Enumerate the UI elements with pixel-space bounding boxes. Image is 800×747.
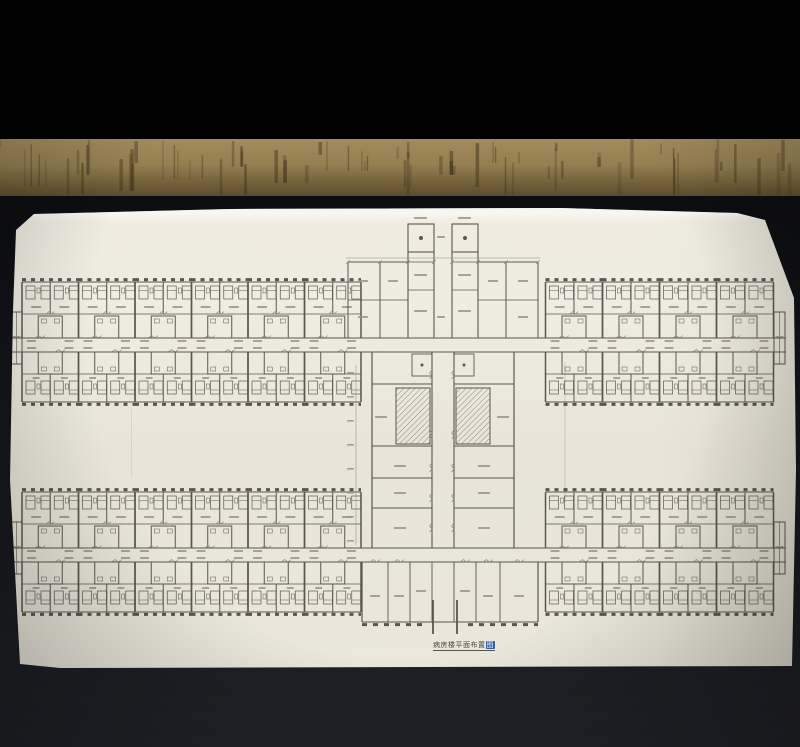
wing-right	[546, 280, 786, 615]
wing-left	[11, 280, 361, 615]
central-core	[346, 217, 540, 634]
title-main: 病房楼平面布置	[433, 641, 486, 649]
photo-scene: 病房楼平面布置图	[0, 0, 800, 747]
wood-grain-texture	[0, 139, 800, 196]
drawing-title-text: 病房楼平面布置图	[433, 641, 495, 651]
drawing-title: 病房楼平面布置图	[412, 641, 516, 650]
title-stamp: 图	[486, 641, 496, 649]
top-letterbox	[0, 0, 800, 139]
wood-surface	[0, 139, 800, 196]
